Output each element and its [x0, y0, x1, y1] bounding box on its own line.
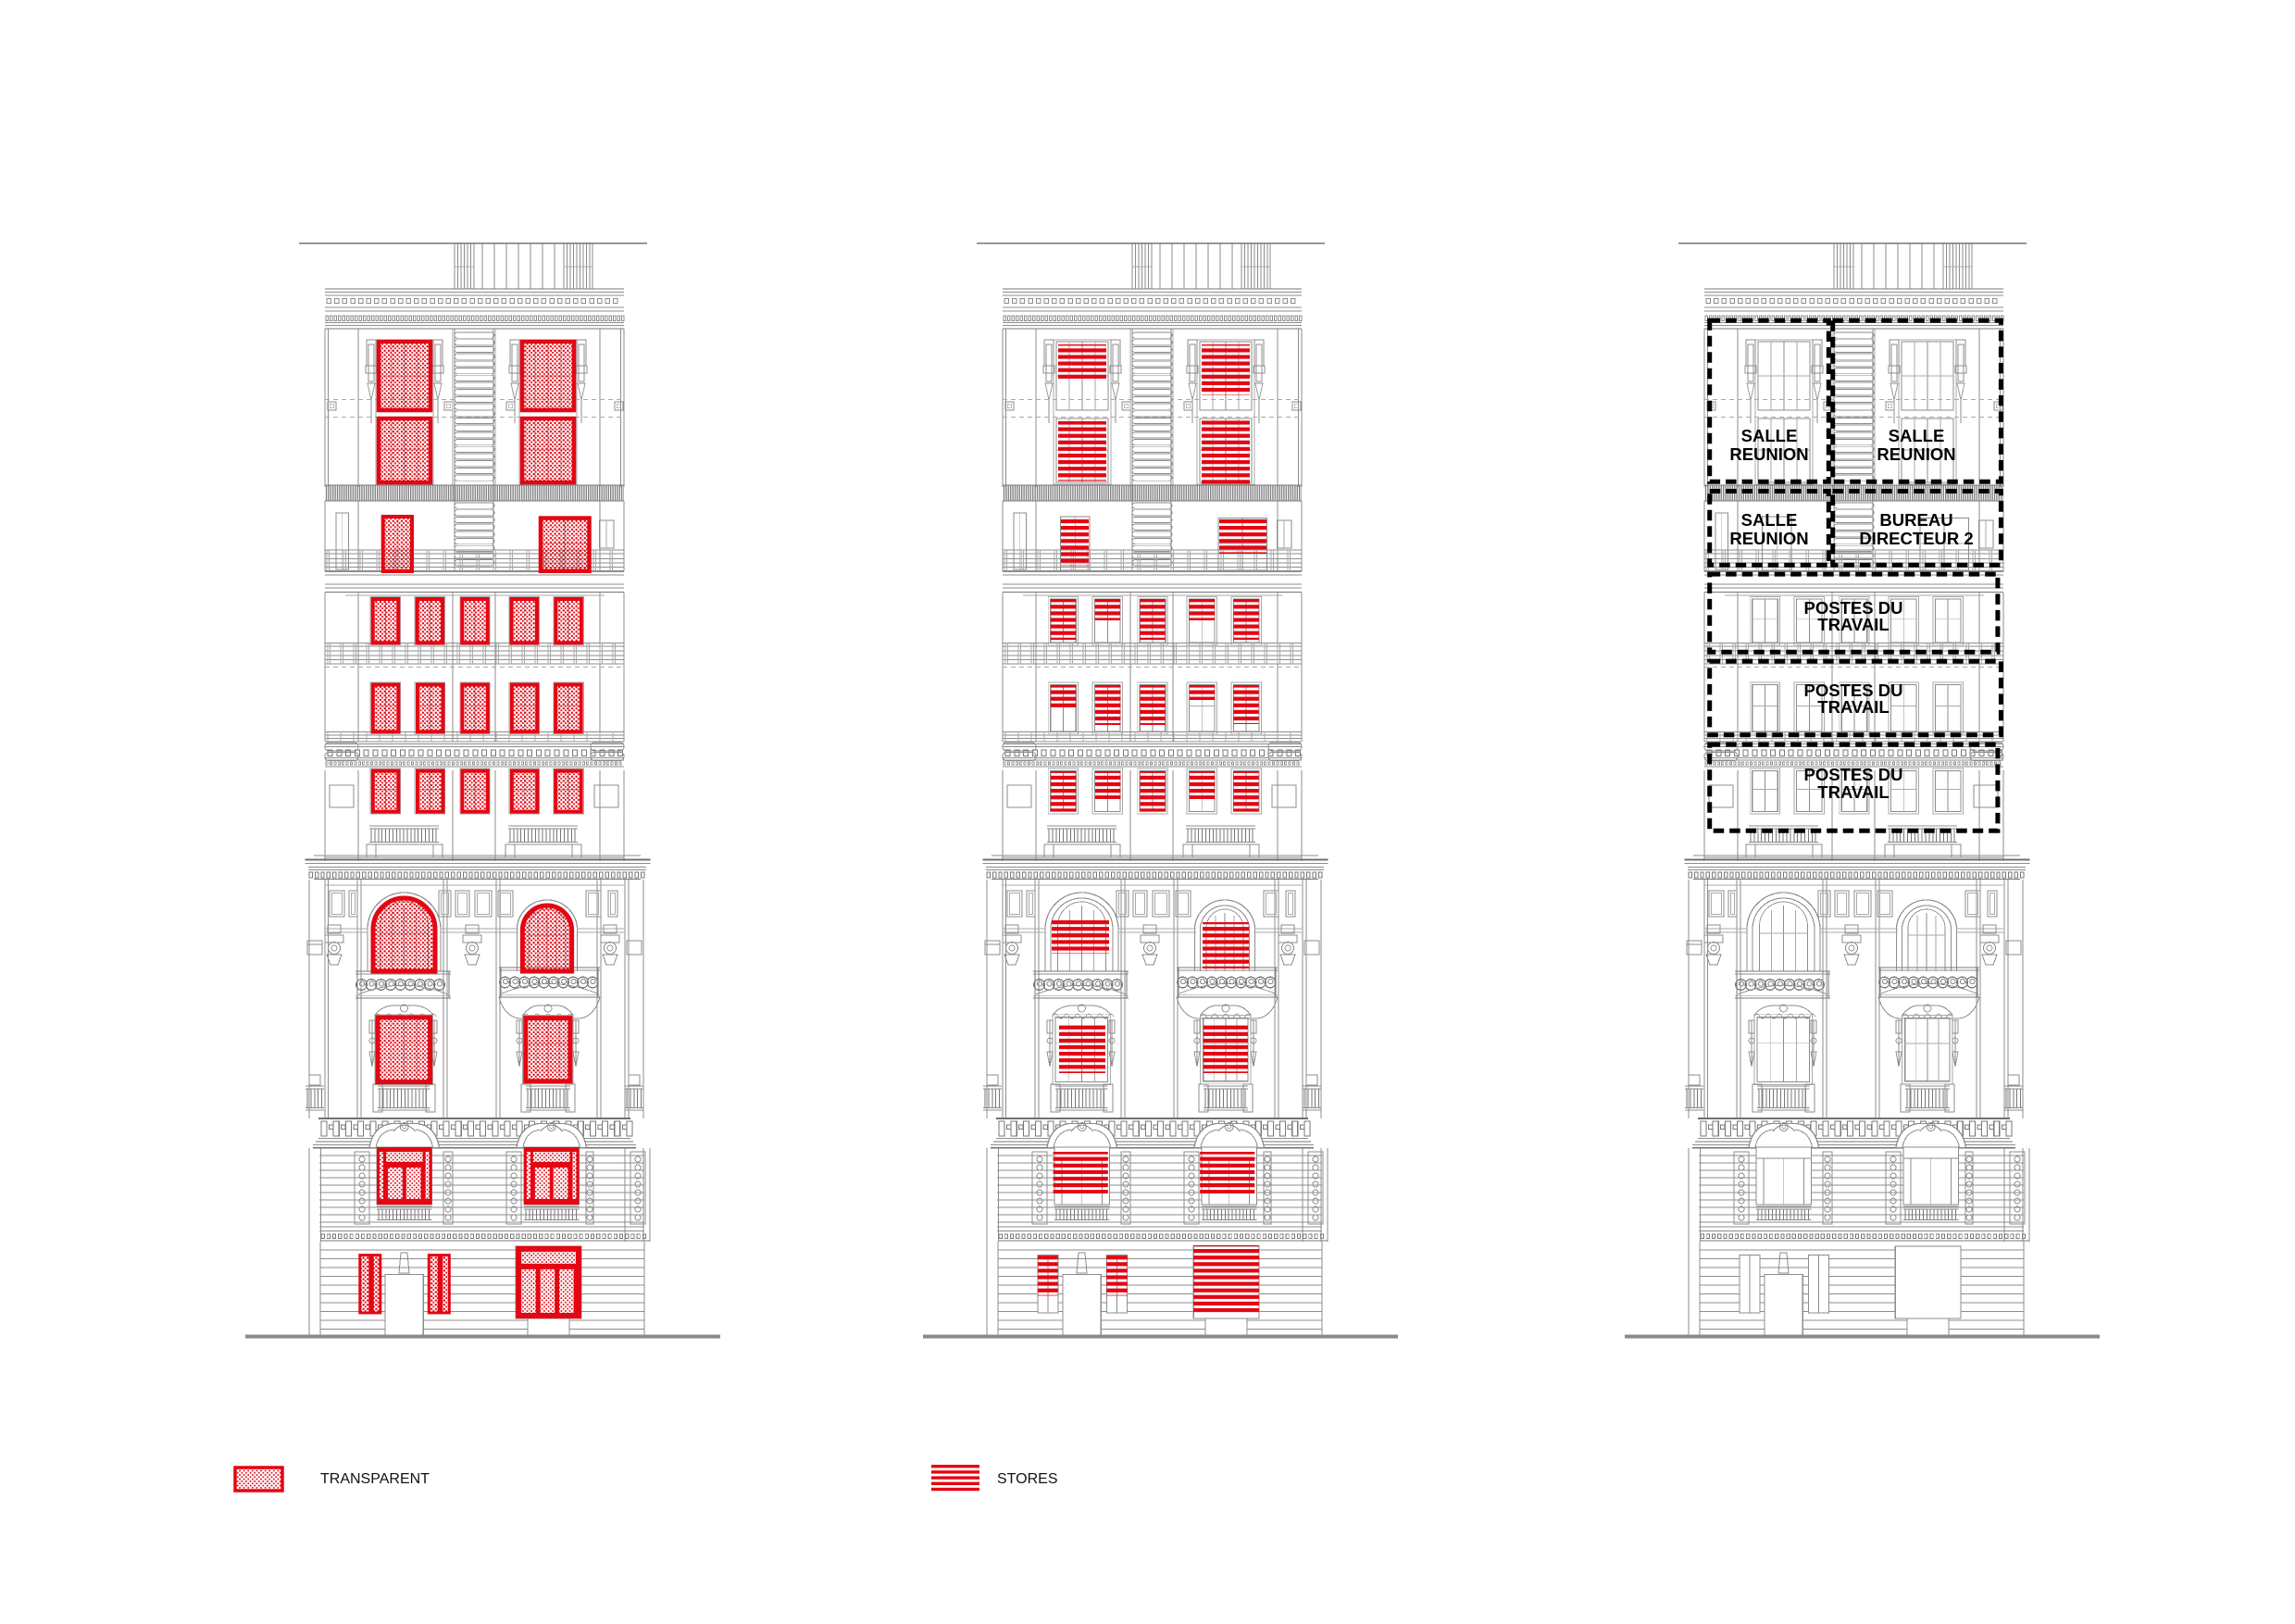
svg-text:TRAVAIL: TRAVAIL: [1817, 615, 1889, 634]
svg-text:DIRECTEUR 2: DIRECTEUR 2: [1859, 529, 1973, 548]
svg-text:SALLE: SALLE: [1741, 510, 1798, 530]
svg-text:REUNION: REUNION: [1877, 444, 1955, 464]
svg-text:SALLE: SALLE: [1889, 426, 1945, 445]
svg-text:REUNION: REUNION: [1729, 529, 1808, 548]
svg-text:SALLE: SALLE: [1741, 426, 1798, 445]
svg-text:STORES: STORES: [997, 1471, 1058, 1487]
svg-text:POSTES DU: POSTES DU: [1804, 765, 1903, 784]
svg-text:TRAVAIL: TRAVAIL: [1817, 697, 1889, 717]
svg-text:BUREAU: BUREAU: [1879, 510, 1952, 530]
svg-text:REUNION: REUNION: [1729, 444, 1808, 464]
svg-text:TRANSPARENT: TRANSPARENT: [320, 1471, 430, 1487]
svg-text:TRAVAIL: TRAVAIL: [1817, 782, 1889, 802]
